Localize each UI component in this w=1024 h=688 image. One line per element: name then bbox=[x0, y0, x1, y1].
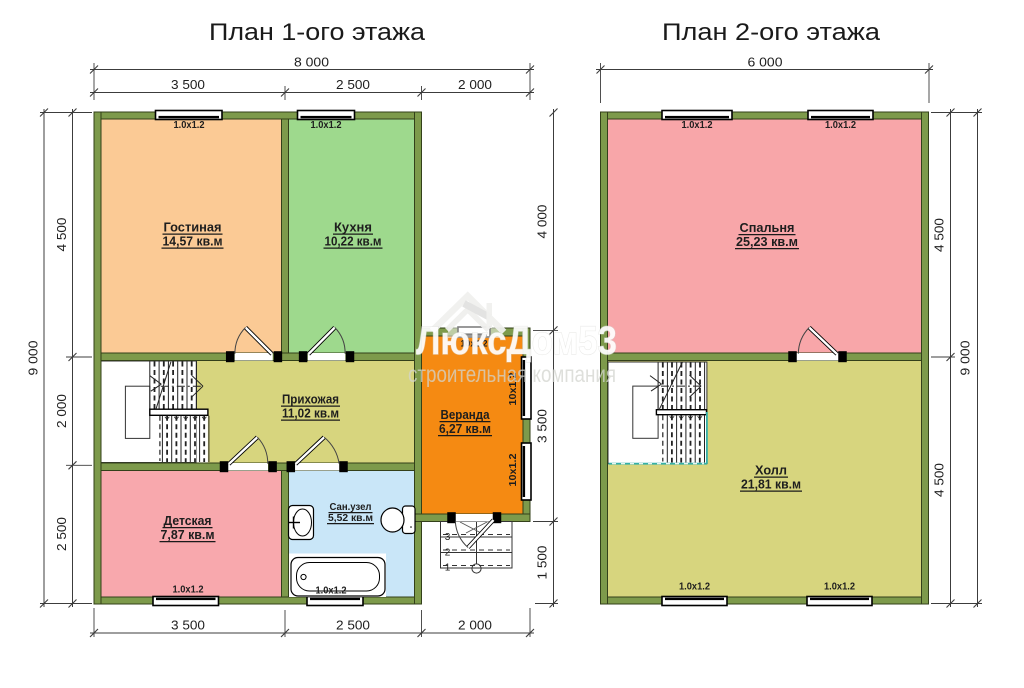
svg-text:1.0х1.2: 1.0х1.2 bbox=[679, 581, 710, 593]
svg-text:строительная компания: строительная компания bbox=[408, 361, 616, 387]
svg-text:3: 3 bbox=[445, 532, 451, 543]
svg-text:11,02 кв.м: 11,02 кв.м bbox=[282, 406, 339, 421]
svg-text:1: 1 bbox=[445, 563, 451, 574]
svg-text:1.0х1.2: 1.0х1.2 bbox=[311, 119, 342, 131]
svg-text:10,22 кв.м: 10,22 кв.м bbox=[325, 234, 382, 249]
svg-text:2 500: 2 500 bbox=[336, 77, 370, 92]
svg-text:3 500: 3 500 bbox=[171, 77, 205, 92]
svg-text:1 500: 1 500 bbox=[535, 546, 550, 580]
svg-text:6,27 кв.м: 6,27 кв.м bbox=[439, 421, 491, 436]
svg-text:4 000: 4 000 bbox=[535, 205, 550, 239]
svg-text:Холл: Холл bbox=[755, 463, 787, 478]
svg-text:2 000: 2 000 bbox=[458, 77, 492, 92]
svg-text:14,57 кв.м: 14,57 кв.м bbox=[163, 234, 223, 249]
svg-text:План 1-ого этажа: План 1-ого этажа bbox=[209, 19, 426, 46]
svg-text:2 000: 2 000 bbox=[54, 394, 69, 428]
svg-text:1.0х1.2: 1.0х1.2 bbox=[682, 119, 713, 131]
svg-text:10x1.2: 10x1.2 bbox=[507, 453, 519, 486]
svg-text:Гостиная: Гостиная bbox=[164, 220, 222, 235]
svg-text:9 000: 9 000 bbox=[26, 341, 41, 376]
svg-text:9 000: 9 000 bbox=[958, 341, 973, 376]
svg-text:Спальня: Спальня bbox=[740, 220, 795, 235]
svg-text:Прихожая: Прихожая bbox=[282, 392, 339, 407]
svg-text:Сан.узел: Сан.узел bbox=[330, 502, 372, 513]
svg-text:21,81 кв.м: 21,81 кв.м bbox=[741, 477, 801, 492]
svg-text:2 500: 2 500 bbox=[54, 517, 69, 551]
svg-text:8 000: 8 000 bbox=[294, 55, 329, 70]
svg-text:1.0х1.2: 1.0х1.2 bbox=[174, 119, 205, 131]
svg-text:1.0х1.2: 1.0х1.2 bbox=[316, 585, 347, 597]
svg-text:3 500: 3 500 bbox=[171, 618, 205, 633]
svg-text:4 500: 4 500 bbox=[932, 463, 947, 497]
svg-text:1.0х1.2: 1.0х1.2 bbox=[825, 119, 856, 131]
svg-text:2 500: 2 500 bbox=[336, 618, 370, 633]
svg-text:7,87 кв.м: 7,87 кв.м bbox=[161, 527, 215, 542]
svg-text:Кухня: Кухня bbox=[334, 220, 372, 235]
svg-text:1.0х1.2: 1.0х1.2 bbox=[824, 581, 855, 593]
svg-text:Детская: Детская bbox=[164, 513, 212, 528]
svg-text:4 500: 4 500 bbox=[932, 218, 947, 252]
svg-text:4 500: 4 500 bbox=[54, 218, 69, 252]
svg-text:2: 2 bbox=[445, 548, 451, 559]
svg-text:6 000: 6 000 bbox=[748, 55, 783, 70]
svg-text:1.0х1.2: 1.0х1.2 bbox=[173, 584, 204, 596]
svg-text:Веранда: Веранда bbox=[441, 407, 491, 422]
svg-text:3 500: 3 500 bbox=[535, 409, 550, 443]
svg-text:25,23 кв.м: 25,23 кв.м bbox=[736, 234, 798, 249]
svg-text:План 2-ого этажа: План 2-ого этажа bbox=[662, 19, 881, 46]
svg-text:ЛюксДом53: ЛюксДом53 bbox=[416, 319, 617, 363]
svg-text:5,52 кв.м: 5,52 кв.м bbox=[328, 513, 373, 524]
svg-text:2 000: 2 000 bbox=[458, 618, 492, 633]
